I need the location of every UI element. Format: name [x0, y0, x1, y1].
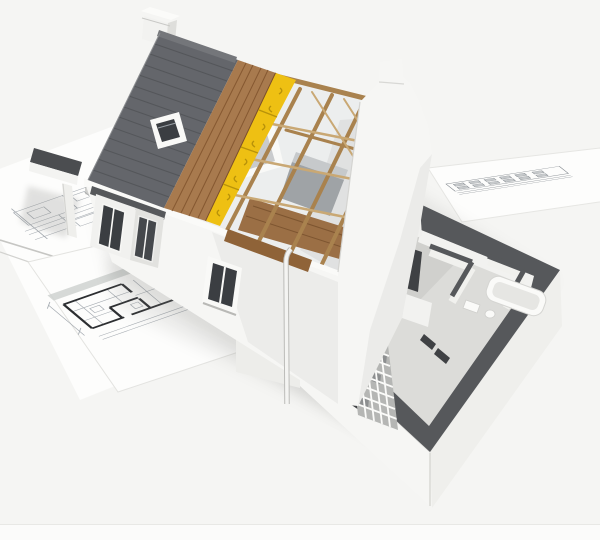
bottom-strip [0, 525, 600, 540]
render-canvas [0, 0, 600, 540]
bottom-edge-line [0, 524, 600, 525]
toilet [485, 310, 495, 318]
house-render-illustration [0, 0, 600, 540]
